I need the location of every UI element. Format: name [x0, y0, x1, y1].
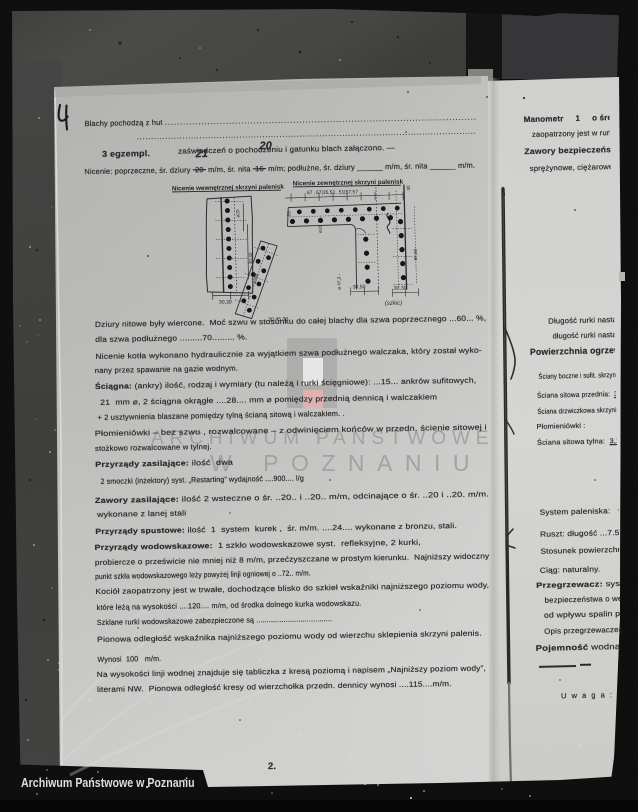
svg-text:⌀20: ⌀20: [235, 209, 240, 217]
svg-text:30,30: 30,30: [248, 252, 253, 264]
svg-text:30,30: 30,30: [219, 299, 232, 305]
svg-text:67 , 67|35,51 , 51|57,57: 67 , 67|35,51 , 51|57,57: [307, 189, 358, 196]
svg-text:30,45,30: 30,45,30: [268, 317, 288, 323]
svg-text:⌀16: ⌀16: [318, 225, 323, 233]
svg-text:30: 30: [406, 185, 411, 191]
svg-text:⌀ 47,3 -: ⌀ 47,3 -: [336, 273, 341, 289]
svg-text:69,60: 69,60: [413, 248, 418, 260]
svg-text:30,30: 30,30: [394, 286, 407, 292]
svg-text:33: 33: [286, 211, 291, 217]
svg-text:30,50: 30,50: [353, 284, 366, 290]
svg-text:(szkic): (szkic): [385, 301, 402, 307]
